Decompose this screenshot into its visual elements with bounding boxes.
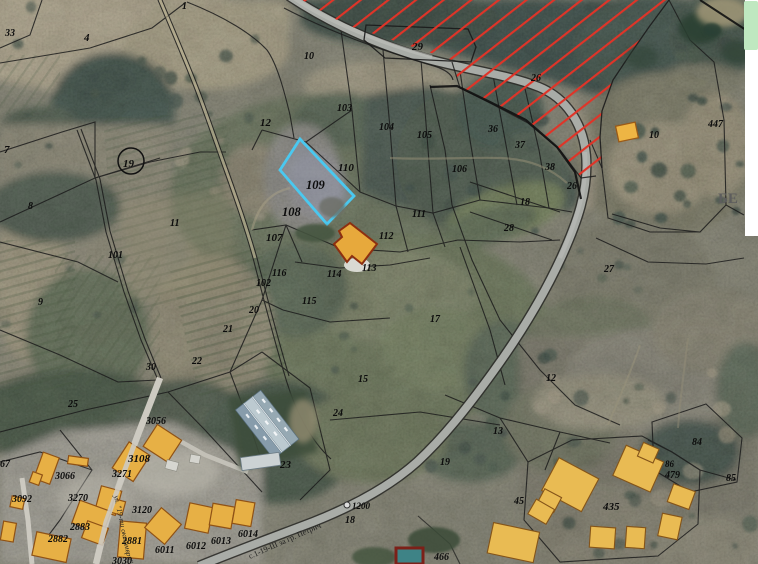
svg-text:104: 104	[379, 122, 394, 133]
svg-text:113: 113	[362, 263, 376, 274]
svg-text:101: 101	[108, 250, 123, 261]
svg-text:30: 30	[145, 362, 156, 373]
svg-text:37: 37	[514, 140, 526, 151]
svg-text:108: 108	[282, 205, 302, 219]
svg-text:3066: 3066	[54, 471, 75, 482]
svg-text:112: 112	[379, 231, 393, 242]
svg-text:12: 12	[546, 373, 556, 384]
svg-text:10: 10	[649, 130, 659, 141]
svg-text:1: 1	[182, 1, 187, 12]
svg-text:8: 8	[28, 201, 33, 212]
svg-text:17: 17	[430, 314, 441, 325]
svg-text:29: 29	[411, 41, 424, 53]
svg-text:111: 111	[412, 209, 426, 220]
svg-text:3056: 3056	[145, 416, 166, 427]
svg-text:БЕ: БЕ	[718, 191, 738, 207]
svg-text:105: 105	[417, 130, 432, 141]
svg-text:12: 12	[260, 117, 272, 129]
svg-text:19: 19	[440, 457, 450, 468]
svg-text:45: 45	[513, 496, 524, 507]
svg-text:22: 22	[191, 356, 202, 367]
svg-text:3108: 3108	[127, 453, 151, 465]
svg-text:2882: 2882	[47, 534, 68, 545]
svg-text:19: 19	[123, 158, 135, 170]
svg-text:109: 109	[306, 178, 326, 192]
svg-text:85: 85	[726, 473, 736, 484]
svg-text:10: 10	[304, 51, 314, 62]
svg-text:6012: 6012	[186, 541, 206, 552]
svg-text:28: 28	[503, 223, 514, 234]
svg-text:3092: 3092	[11, 494, 32, 505]
svg-text:114: 114	[327, 269, 341, 280]
svg-text:20: 20	[248, 305, 259, 316]
svg-text:86: 86	[665, 459, 675, 469]
svg-text:106: 106	[452, 164, 467, 175]
svg-text:3271: 3271	[111, 469, 132, 480]
svg-text:466: 466	[433, 552, 449, 563]
svg-text:102: 102	[256, 278, 271, 289]
svg-text:21: 21	[222, 324, 233, 335]
svg-text:447: 447	[707, 119, 724, 130]
svg-text:6011: 6011	[155, 545, 174, 556]
svg-text:6013: 6013	[211, 536, 231, 547]
svg-text:2883: 2883	[69, 522, 90, 533]
svg-text:103: 103	[337, 103, 352, 114]
svg-text:4: 4	[83, 32, 90, 44]
svg-text:1200: 1200	[352, 501, 371, 511]
svg-text:435: 435	[602, 501, 620, 513]
svg-text:18: 18	[520, 197, 530, 208]
svg-text:479: 479	[664, 470, 680, 481]
svg-text:6014: 6014	[238, 529, 258, 540]
svg-text:3270: 3270	[67, 493, 88, 504]
svg-text:38: 38	[544, 162, 555, 173]
svg-text:3120: 3120	[131, 505, 152, 516]
svg-text:110: 110	[338, 162, 354, 174]
svg-text:115: 115	[302, 296, 316, 307]
svg-text:7: 7	[4, 144, 10, 156]
svg-text:27: 27	[603, 264, 615, 275]
svg-text:84: 84	[692, 437, 702, 448]
svg-text:26: 26	[530, 73, 541, 84]
svg-text:13: 13	[493, 426, 503, 437]
svg-text:23: 23	[279, 459, 292, 471]
svg-text:25: 25	[67, 399, 78, 410]
svg-text:33: 33	[4, 28, 15, 39]
svg-text:36: 36	[487, 124, 498, 135]
svg-text:18: 18	[345, 515, 355, 526]
svg-text:11: 11	[170, 218, 179, 229]
svg-text:67: 67	[0, 459, 11, 470]
svg-text:26: 26	[566, 181, 577, 192]
svg-text:9: 9	[38, 297, 43, 308]
svg-text:15: 15	[358, 374, 368, 385]
svg-text:107: 107	[266, 232, 283, 244]
svg-text:116: 116	[272, 268, 286, 279]
svg-text:24: 24	[332, 408, 343, 419]
